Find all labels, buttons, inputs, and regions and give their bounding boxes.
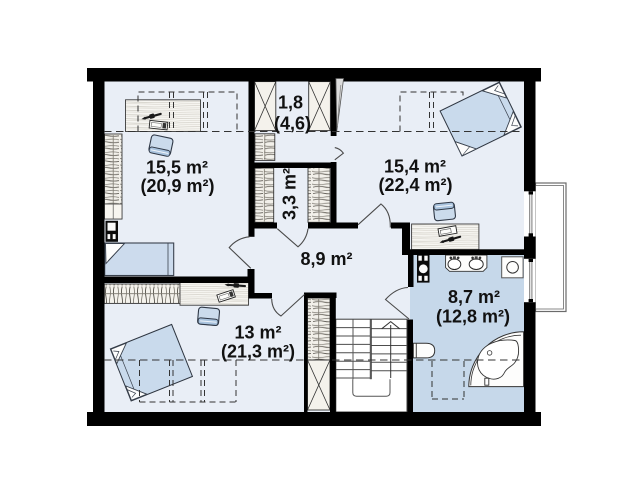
svg-text:13 m²: 13 m² bbox=[234, 323, 281, 343]
svg-text:1,8: 1,8 bbox=[278, 93, 303, 113]
svg-text:15,5 m²: 15,5 m² bbox=[146, 158, 208, 178]
svg-text:(22,4 m²): (22,4 m²) bbox=[378, 175, 452, 195]
svg-text:15,4 m²: 15,4 m² bbox=[384, 157, 446, 177]
svg-text:8,7 m²: 8,7 m² bbox=[448, 287, 500, 307]
svg-text:(4,6): (4,6) bbox=[274, 113, 311, 133]
svg-text:3,3 m²: 3,3 m² bbox=[280, 168, 300, 220]
svg-text:8,9 m²: 8,9 m² bbox=[300, 249, 352, 269]
svg-text:(21,3 m²): (21,3 m²) bbox=[221, 342, 295, 362]
svg-text:(20,9 m²): (20,9 m²) bbox=[140, 176, 214, 196]
svg-text:(12,8 m²): (12,8 m²) bbox=[436, 307, 510, 327]
